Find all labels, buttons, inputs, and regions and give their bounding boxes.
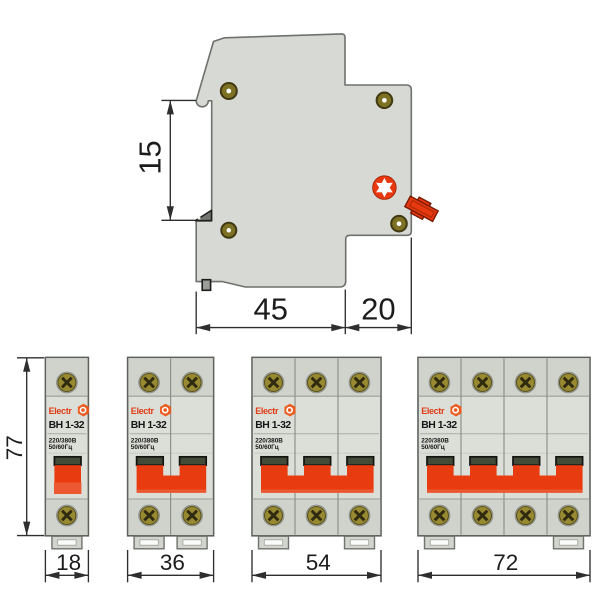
- svg-text:36: 36: [160, 550, 185, 575]
- svg-text:50/60Гц: 50/60Гц: [131, 444, 155, 451]
- svg-text:Electr: Electr: [131, 406, 155, 416]
- svg-text:50/60Гц: 50/60Гц: [49, 444, 73, 451]
- svg-text:15: 15: [133, 140, 168, 174]
- svg-text:Electr: Electr: [49, 406, 73, 416]
- svg-text:77: 77: [2, 435, 27, 460]
- svg-text:ВН 1-32: ВН 1-32: [131, 420, 167, 431]
- svg-text:Electr: Electr: [255, 406, 279, 416]
- svg-text:ВН 1-32: ВН 1-32: [255, 420, 291, 431]
- svg-text:72: 72: [493, 550, 518, 575]
- svg-text:45: 45: [254, 292, 288, 327]
- svg-text:18: 18: [56, 550, 81, 575]
- svg-text:ВН 1-32: ВН 1-32: [421, 420, 457, 431]
- svg-text:Electr: Electr: [421, 406, 445, 416]
- svg-text:50/60Гц: 50/60Гц: [255, 444, 279, 451]
- svg-text:54: 54: [306, 550, 331, 575]
- svg-text:20: 20: [361, 292, 395, 327]
- svg-text:50/60Гц: 50/60Гц: [421, 444, 445, 451]
- svg-text:ВН 1-32: ВН 1-32: [49, 420, 85, 431]
